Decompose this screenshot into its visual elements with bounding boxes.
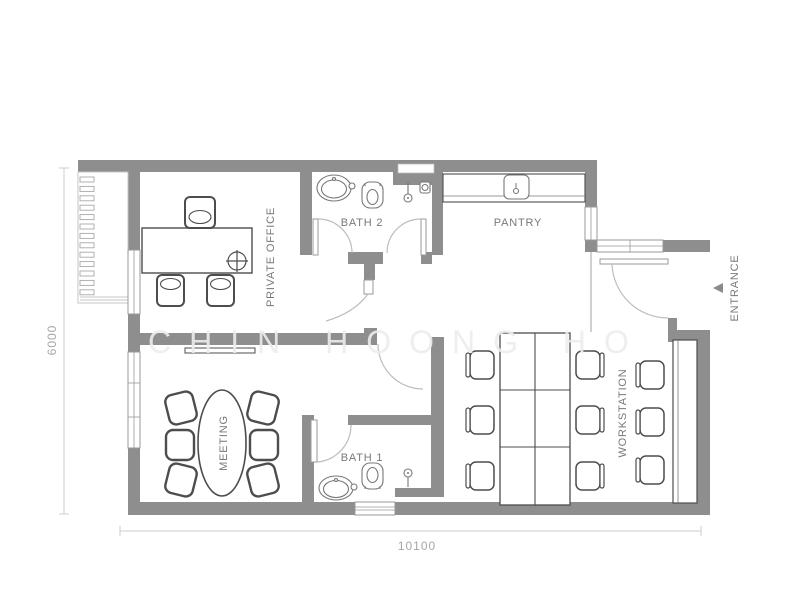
label-workstation: WORKSTATION: [617, 368, 629, 457]
dimension-width: 10100: [398, 539, 436, 553]
ledge-hatch: [80, 177, 94, 295]
wall-segment: [697, 330, 710, 515]
entrance-label: ENTRANCE: [729, 255, 741, 322]
door-entrance: [600, 259, 668, 318]
sink-icon: [317, 175, 355, 201]
door-bath2-right: [387, 219, 426, 255]
pantry-furniture: [443, 174, 585, 202]
task-chair: [636, 456, 664, 484]
task-chair: [636, 361, 664, 389]
wall-segment: [585, 240, 597, 252]
window-private-office: [128, 250, 140, 314]
toilet-icon: [362, 463, 383, 489]
window-entrance-side: [597, 240, 663, 252]
wall-segment: [364, 264, 375, 280]
meeting-chair: [250, 430, 278, 460]
wall-niche: [398, 164, 434, 173]
meeting-chair: [164, 390, 198, 426]
label-private-office: PRIVATE OFFICE: [265, 207, 277, 307]
dimension-height: 6000: [45, 325, 59, 356]
wall-segment: [300, 172, 312, 255]
label-pantry: PANTRY: [494, 217, 542, 229]
task-chair: [636, 408, 664, 436]
meeting-chair: [166, 430, 194, 460]
door-corridor: [326, 280, 373, 321]
entrance-marker: ENTRANCE: [713, 255, 741, 322]
wall-segment: [128, 502, 710, 515]
wall-segment: [431, 337, 444, 497]
entrance-arrow-icon: [713, 283, 723, 293]
side-counter-chairs: [636, 361, 664, 484]
wall-segment: [585, 172, 597, 207]
meeting-chair: [246, 462, 280, 498]
executive-chair: [185, 197, 215, 228]
watermark-text: CHIN HOONG HO: [148, 324, 647, 360]
pantry-sink-icon: [504, 175, 529, 199]
task-chair: [576, 462, 604, 490]
task-chair: [466, 406, 494, 434]
window-pantry: [585, 207, 597, 240]
window-meeting: [128, 352, 140, 448]
label-meeting: MEETING: [218, 415, 230, 471]
task-chair: [466, 462, 494, 490]
side-counter: [673, 340, 697, 503]
label-bath2: BATH 2: [341, 217, 384, 229]
floor-plan: CHIN HOONG HO PRIVATE OFFICE BATH 2 PANT…: [0, 0, 786, 600]
toilet-icon: [362, 182, 383, 208]
office-desk: [142, 228, 252, 273]
meeting-chair: [246, 390, 280, 426]
meeting-chair: [164, 462, 198, 498]
wall-segment: [348, 252, 383, 264]
guest-chair: [157, 275, 184, 306]
window-bath1: [355, 502, 395, 515]
shower-head-icon: [404, 469, 412, 487]
wall-segment: [395, 488, 432, 497]
wall-segment: [128, 172, 140, 250]
floor-plan-canvas: CHIN HOONG HO PRIVATE OFFICE BATH 2 PANT…: [0, 0, 786, 600]
sink-icon: [319, 476, 357, 500]
guest-chair: [207, 275, 234, 306]
label-bath1: BATH 1: [341, 452, 384, 464]
private-office-furniture: [142, 197, 252, 306]
wall-segment: [78, 160, 597, 172]
wall-segment: [663, 240, 710, 252]
wall-segment: [348, 415, 432, 425]
task-chair: [576, 406, 604, 434]
